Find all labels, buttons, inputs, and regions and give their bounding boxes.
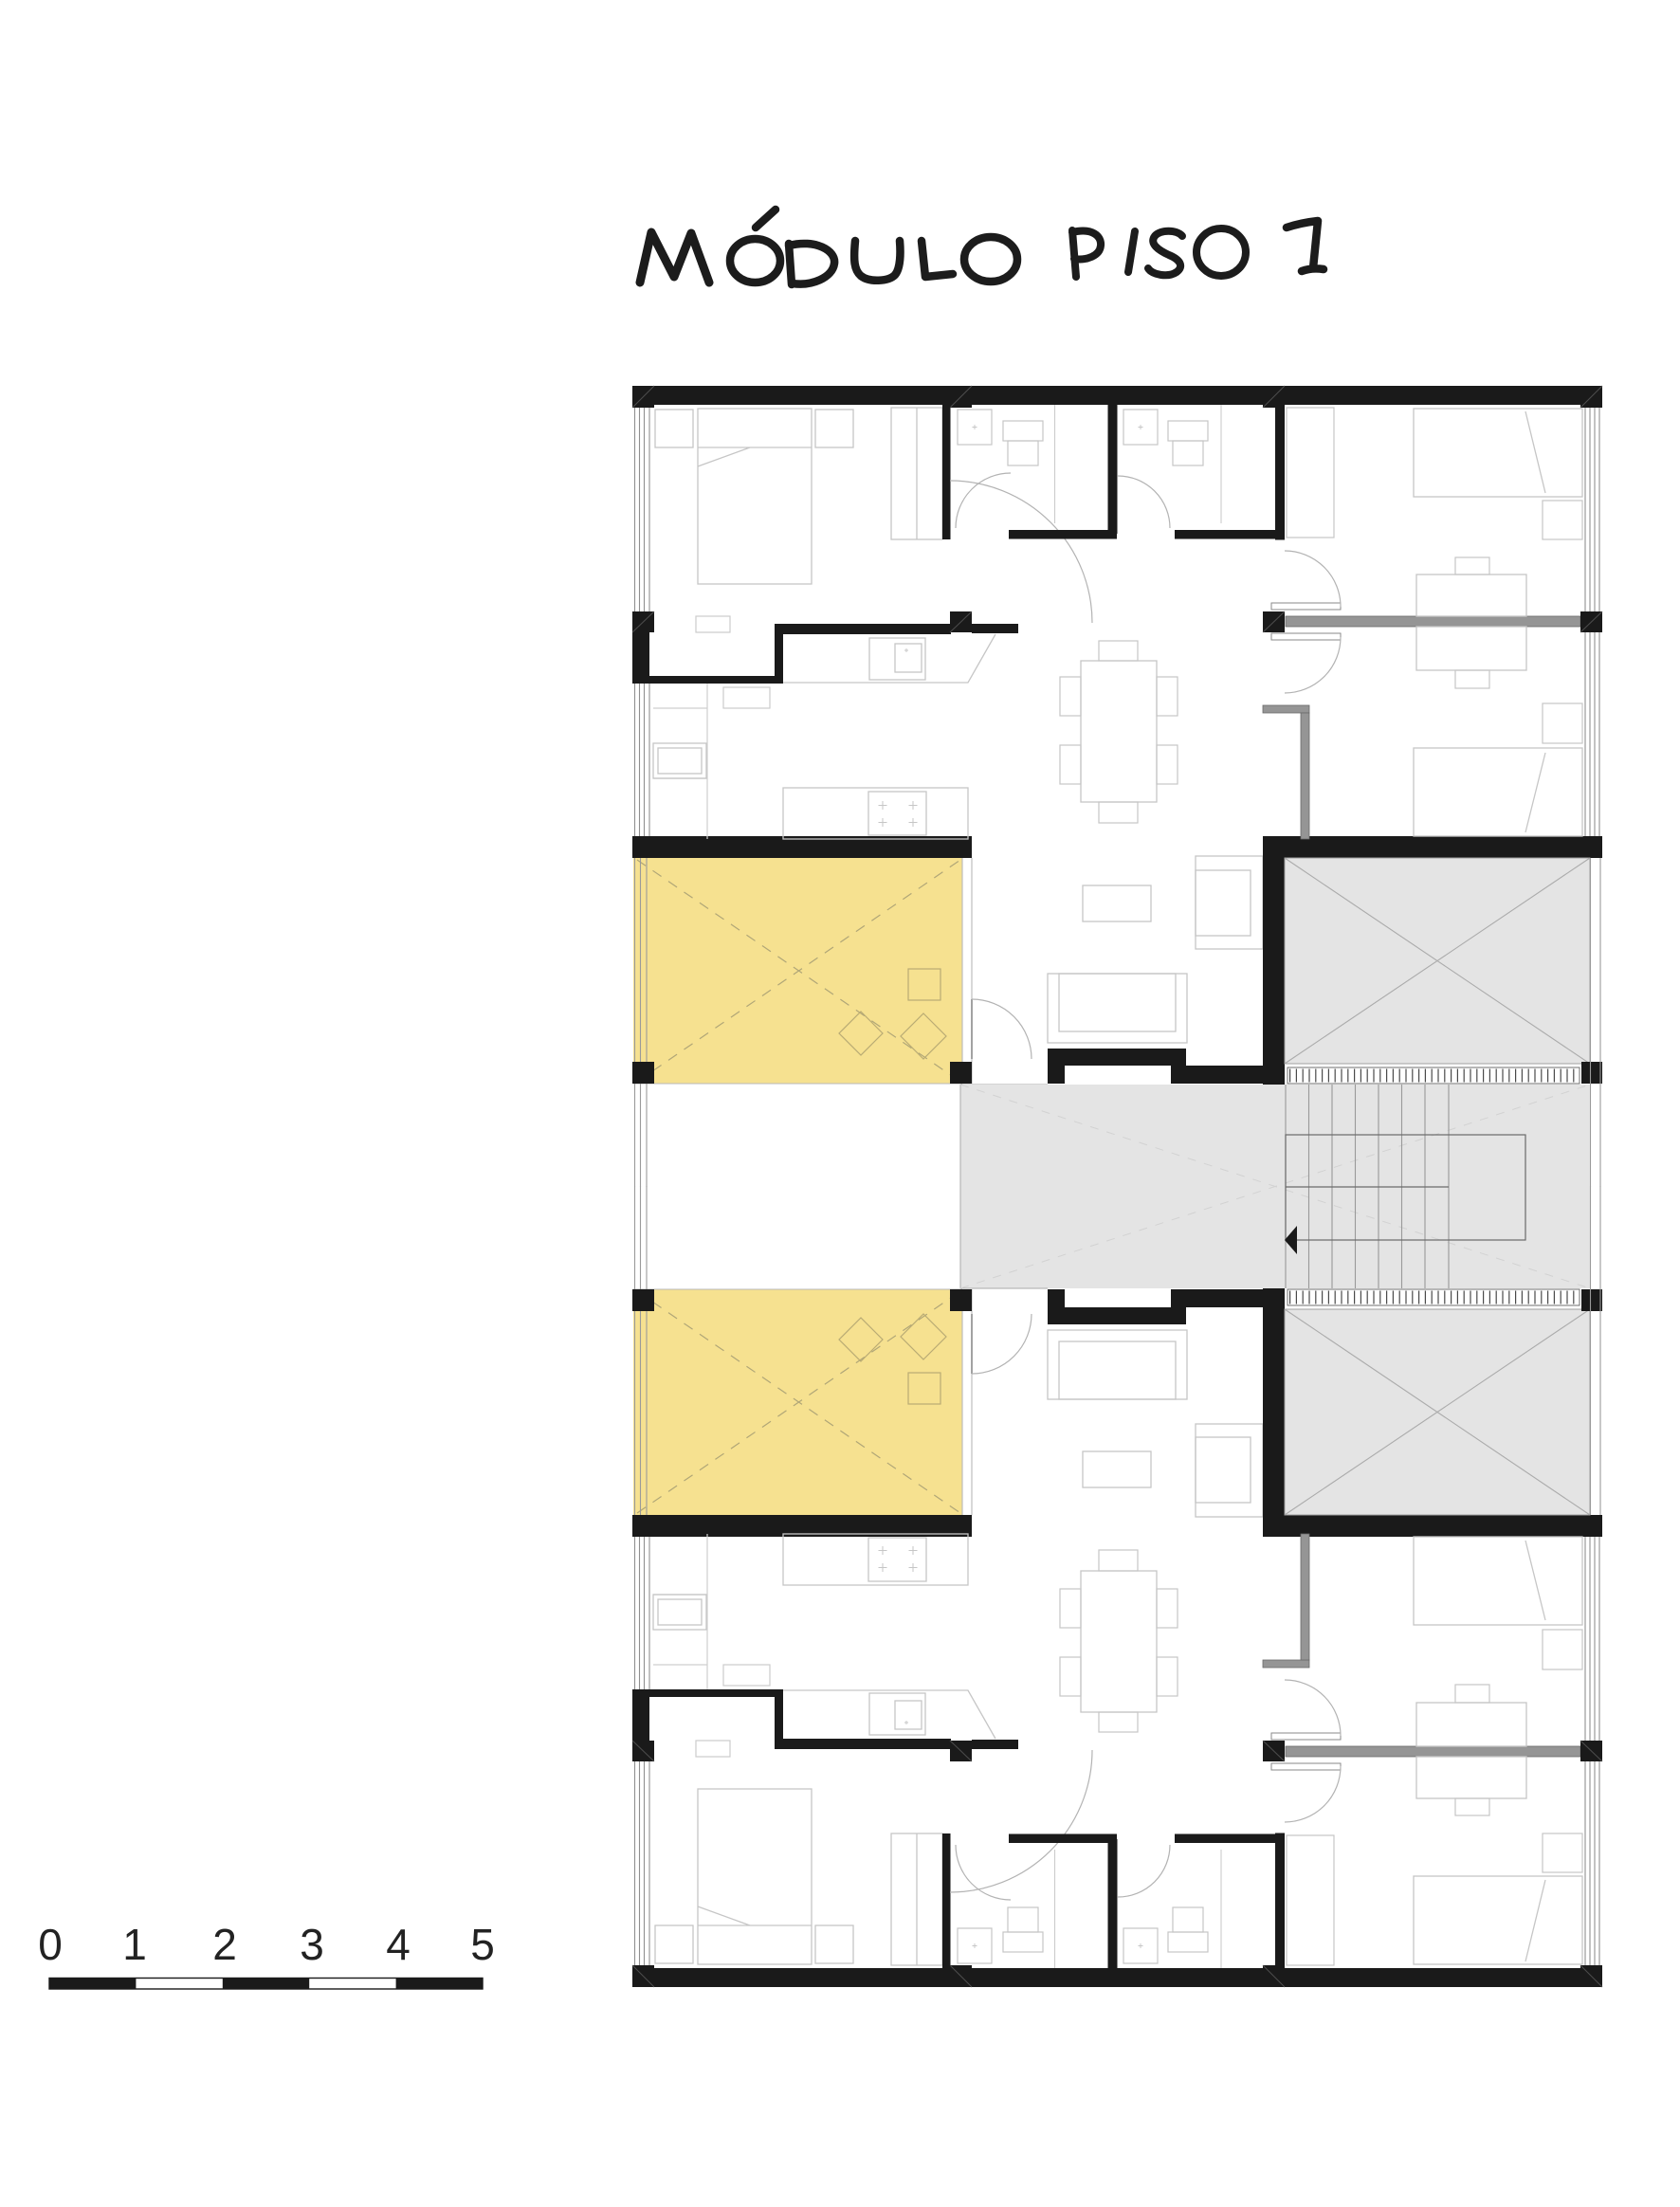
svg-text:1: 1 [122, 1920, 147, 1969]
svg-text:3: 3 [300, 1920, 324, 1969]
svg-text:2: 2 [212, 1920, 237, 1969]
svg-text:0: 0 [38, 1920, 63, 1969]
svg-text:5: 5 [470, 1920, 495, 1969]
svg-text:4: 4 [386, 1920, 411, 1969]
